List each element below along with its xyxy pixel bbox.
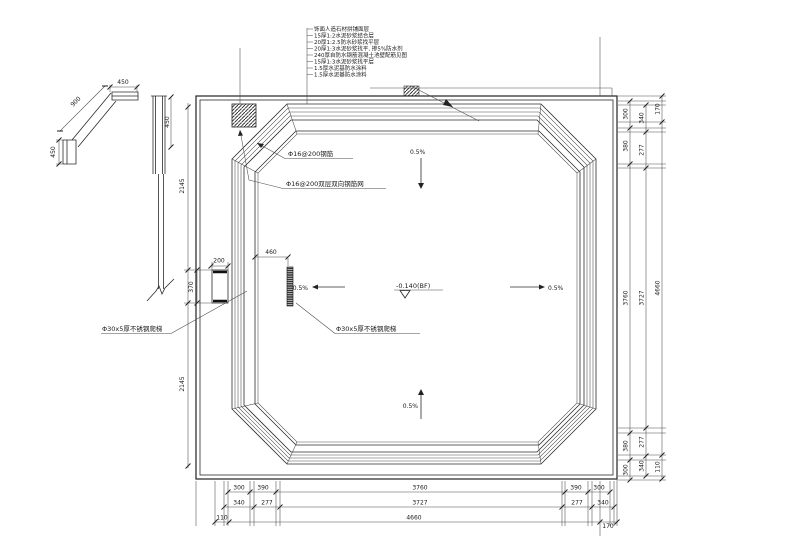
slope-bottom-label: 0.5% xyxy=(403,403,419,410)
dim-b3-3: 170 xyxy=(602,523,614,530)
dim-r1-3: 3760 xyxy=(623,290,630,305)
arrow-up-icon xyxy=(418,389,424,395)
dim-r1-4: 380 xyxy=(623,440,630,452)
slope-arrow-left: 0.5% xyxy=(293,285,345,293)
dim-b2-4: 277 xyxy=(571,500,583,507)
corner-section-hatch xyxy=(232,104,256,127)
layer-note-7: 1.5厚水泥基防水涂料 xyxy=(314,64,367,72)
rebar-top-arrowhead xyxy=(257,143,264,148)
rebar-callouts: Φ16@200钢筋 Φ16@200双层双向钢筋网 xyxy=(238,130,386,189)
dim-r2-1: 340 xyxy=(639,112,646,124)
dim-r3-3: 110 xyxy=(655,461,662,473)
dim-section-height: 450 xyxy=(164,116,171,128)
break-line-symbol xyxy=(147,279,174,301)
dim-rail-offset: 460 xyxy=(265,249,277,256)
dim-r2-2: 277 xyxy=(639,144,646,156)
rebar-mesh-arrowhead xyxy=(238,130,243,136)
dim-b1-3: 3760 xyxy=(412,485,427,492)
dim-bracket-width: 200 xyxy=(213,258,225,265)
dim-r1-1: 300 xyxy=(623,108,630,120)
wall-layers-callout: 饰面人造石材拼铺面层 15厚1:2水泥砂浆结合层 20厚1:2.5防水砂浆找平层… xyxy=(307,25,479,121)
arrow-right-icon xyxy=(539,285,545,290)
rebar-top-label: Φ16@200钢筋 xyxy=(288,149,334,158)
bottom-dimensions: 300 390 3760 390 300 340 277 3727 277 34… xyxy=(196,479,620,536)
dim-r3-1: 170 xyxy=(655,103,662,115)
arrow-left-icon xyxy=(312,285,318,290)
dim-b2-1: 340 xyxy=(233,500,245,507)
elevation-triangle-icon xyxy=(400,291,410,299)
layer-note-2: 15厚1:2水泥砂浆结合层 xyxy=(314,32,374,40)
corner-coping-detail: 450 900 450 xyxy=(50,79,140,167)
dim-r2-3: 3727 xyxy=(639,290,646,305)
slope-arrow-top: 0.5% xyxy=(410,149,426,189)
dim-left-lower: 2145 xyxy=(179,376,186,391)
layer-note-8: 1.5厚水泥基防水涂料 xyxy=(314,71,367,79)
ladder-left-callout: Φ30x5厚不锈钢爬梯 xyxy=(101,291,247,334)
dim-b1-4: 390 xyxy=(570,485,582,492)
ladder-center-callout: Φ30x5厚不锈钢爬梯 xyxy=(296,303,420,334)
slope-arrow-bottom: 0.5% xyxy=(403,389,424,419)
dim-b2-5: 340 xyxy=(597,500,609,507)
ladder-left-label: Φ30x5厚不锈钢爬梯 xyxy=(102,324,163,333)
dim-r1-2: 380 xyxy=(623,140,630,152)
layer-note-6: 15厚1:3水泥砂浆找平层 xyxy=(314,58,374,66)
right-dimensions: 300 380 3760 380 300 340 277 3727 277 34… xyxy=(618,94,666,483)
cad-drawing-canvas: 450 900 450 450 xyxy=(0,0,800,547)
dim-b3-2: 4660 xyxy=(406,515,421,522)
dim-b1-2: 390 xyxy=(257,485,269,492)
dim-b2-2: 277 xyxy=(261,500,273,507)
slope-top-label: 0.5% xyxy=(410,149,426,156)
dim-left-upper: 2145 xyxy=(179,178,186,193)
ladder-rail: 460 xyxy=(253,249,294,306)
slope-right-label: 0.5% xyxy=(548,285,564,292)
layer-note-1: 饰面人造石材拼铺面层 xyxy=(314,25,370,33)
rebar-mesh-label: Φ16@200双层双向钢筋网 xyxy=(286,179,364,188)
slope-arrow-right: 0.5% xyxy=(510,285,564,293)
pool-plan-drawing: 450 900 450 450 xyxy=(0,0,800,547)
cover-hatch-patch xyxy=(404,86,419,96)
ladder-bracket: 200 370 xyxy=(188,258,231,306)
wall-section-detail: 450 xyxy=(147,95,174,302)
dim-b1-5: 300 xyxy=(593,485,605,492)
dim-r2-4: 277 xyxy=(639,436,646,448)
dim-b1-1: 300 xyxy=(233,485,245,492)
dim-bracket-height: 370 xyxy=(188,281,195,293)
dim-r2-5: 340 xyxy=(639,460,646,472)
elevation-marker: -0.140(BF) xyxy=(394,282,443,298)
dim-r1-5: 300 xyxy=(623,464,630,476)
elevation-label: -0.140(BF) xyxy=(396,282,430,290)
layer-note-4: 20厚1:3水泥砂浆找平, 掺5%防水剂 xyxy=(314,45,403,53)
dim-b2-3: 3727 xyxy=(412,500,427,507)
dim-b3-1: 110 xyxy=(216,515,228,522)
dim-r3-2: 4660 xyxy=(655,280,662,295)
dim-coping-diagonal: 900 xyxy=(69,95,82,108)
arrow-down-icon xyxy=(418,183,424,189)
layer-note-5: 240厚自防水钢筋混凝土池壁配筋见图 xyxy=(314,51,407,59)
layer-note-3: 20厚1:2.5防水砂浆找平层 xyxy=(314,38,380,46)
dim-coping-width: 450 xyxy=(117,79,129,86)
ladder-center-label: Φ30x5厚不锈钢爬梯 xyxy=(336,324,397,333)
slope-left-label: 0.5% xyxy=(293,285,309,292)
dim-coping-height: 450 xyxy=(50,146,57,158)
